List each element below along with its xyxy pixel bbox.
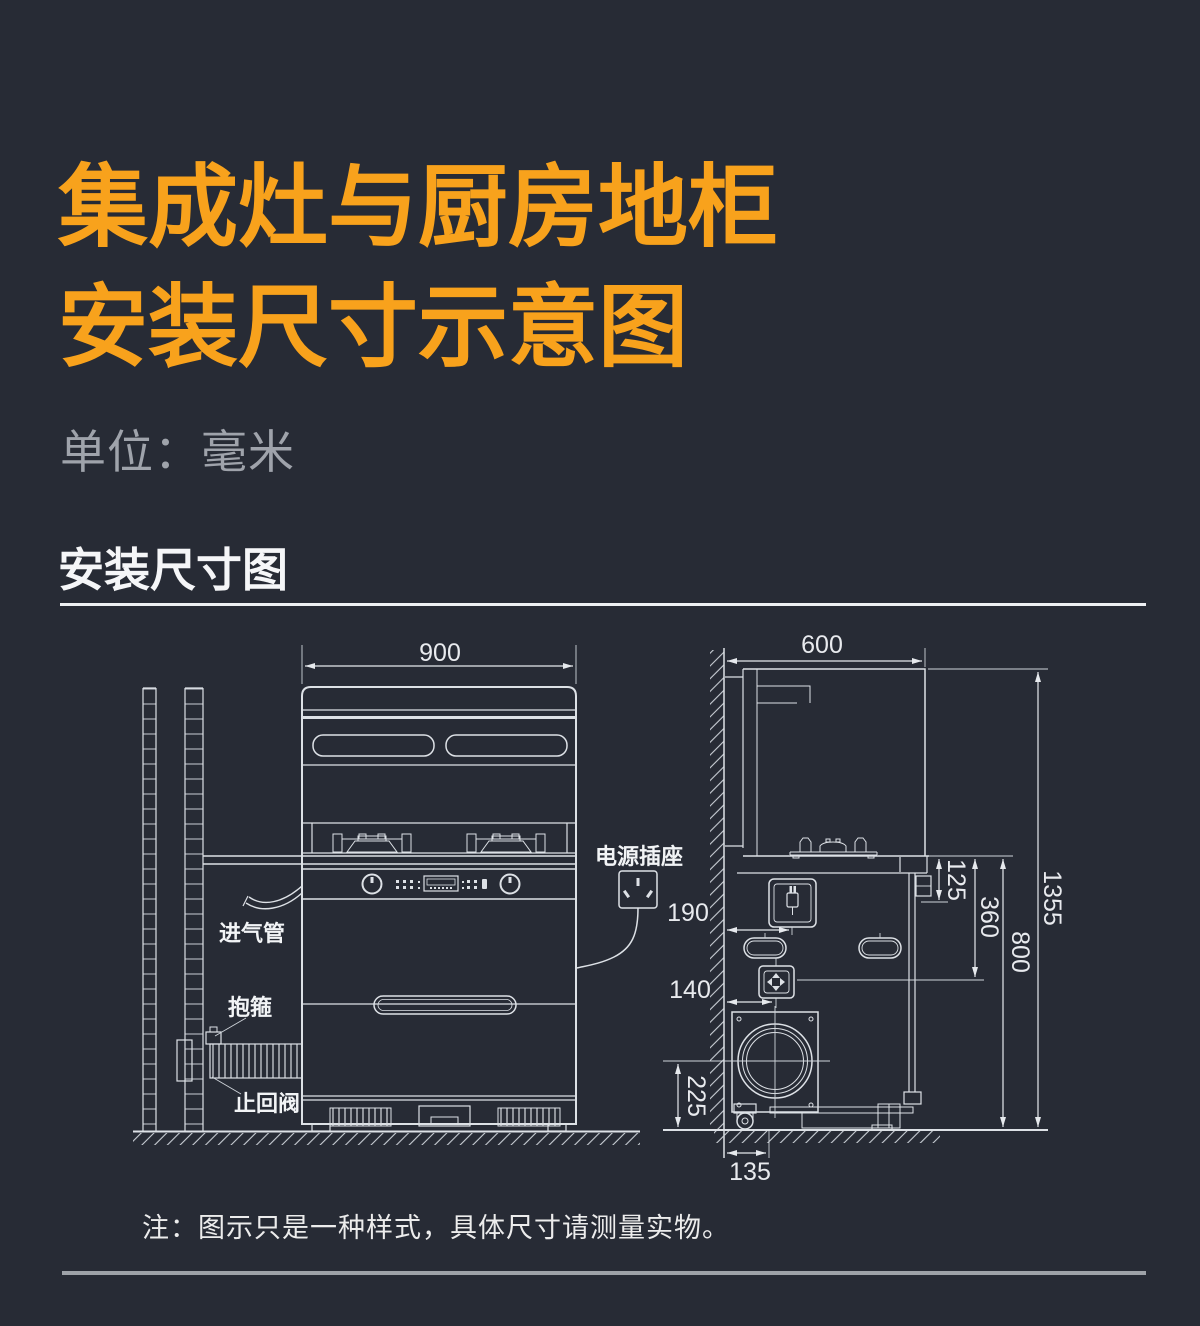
dim-800: 800 xyxy=(1006,931,1034,973)
kick-plate xyxy=(302,1096,576,1131)
hood-profile xyxy=(725,669,925,856)
hood-vent-right xyxy=(446,735,567,756)
gas-intake: 进气管 xyxy=(219,886,302,946)
hood-vent-left xyxy=(313,735,434,756)
footnote: 注：图示只是一种样式，具体尺寸请测量实物。 xyxy=(142,1206,730,1245)
dim-190: 190 xyxy=(667,899,709,927)
front-view: 900 xyxy=(133,639,640,1145)
dim-outlet-height: 225 xyxy=(678,1064,710,1127)
intake-pipe-label: 进气管 xyxy=(219,921,285,946)
ground-front xyxy=(133,1132,640,1146)
dim-600: 600 xyxy=(801,631,843,659)
dim-225: 225 xyxy=(682,1075,710,1117)
gas-valve xyxy=(759,958,794,1008)
socket-side xyxy=(769,879,816,935)
indicator-icons-left xyxy=(396,880,420,889)
hood-trim-band xyxy=(302,716,576,719)
foot-left xyxy=(312,1124,330,1131)
dim-valve-below-counter: 360 xyxy=(797,859,1003,980)
drawer-handle xyxy=(374,996,516,1014)
dim-counter-height: 800 xyxy=(1003,859,1034,1127)
page: 集成灶与厨房地柜 安装尺寸示意图 单位：毫米 安装尺寸图 xyxy=(0,0,1200,1326)
installation-diagram: 900 xyxy=(0,0,1200,1326)
display xyxy=(424,876,458,891)
kick-grille-left xyxy=(330,1108,391,1126)
check-valve-label: 止回阀 xyxy=(234,1091,300,1116)
wall xyxy=(710,648,724,1158)
base-frame xyxy=(770,1104,913,1130)
dim-front-width: 900 xyxy=(302,639,576,684)
power-socket-label: 电源插座 xyxy=(595,844,683,869)
cabinet-front-panel xyxy=(904,873,921,1104)
dim-900: 900 xyxy=(419,639,461,667)
countertop-band xyxy=(203,856,576,864)
corrugated-duct xyxy=(210,1044,302,1078)
bottom-divider xyxy=(62,1271,1146,1275)
control-panel xyxy=(302,869,576,899)
dim-125: 125 xyxy=(942,859,970,901)
oval-vents xyxy=(744,933,901,958)
flue-shaft-right xyxy=(185,688,203,1131)
dim-135: 135 xyxy=(729,1158,771,1186)
clamp-label: 抱箍 xyxy=(228,995,272,1020)
burner-side xyxy=(790,838,877,858)
caster-wheel xyxy=(734,1104,756,1129)
flue-shaft-left xyxy=(143,688,156,1131)
countertop-side xyxy=(737,856,1013,896)
dim-depth: 600 xyxy=(727,631,925,667)
burner-left xyxy=(333,834,411,852)
power-socket-icon xyxy=(619,871,657,908)
ground-side xyxy=(663,1130,1048,1143)
side-view: 600 xyxy=(663,631,1066,1186)
power-cord xyxy=(577,908,638,968)
dim-360: 360 xyxy=(975,896,1003,938)
burner-right xyxy=(467,834,545,852)
stove-body xyxy=(302,687,576,1124)
four-way-arrow-icon xyxy=(767,973,785,991)
dim-140: 140 xyxy=(669,976,711,1004)
dim-1355: 1355 xyxy=(1038,870,1066,926)
kick-grille-right xyxy=(498,1108,560,1126)
indicator-icons-right xyxy=(462,879,487,889)
